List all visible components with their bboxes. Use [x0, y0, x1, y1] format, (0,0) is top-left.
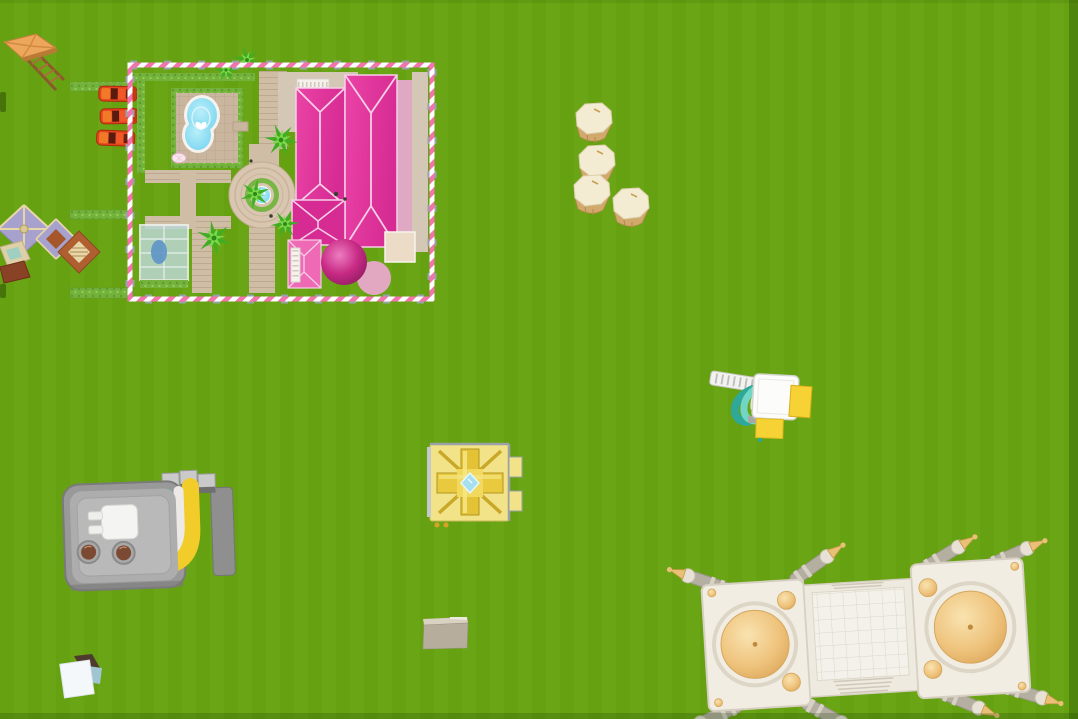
crate-face [60, 660, 94, 698]
golden-shrine[interactable] [427, 444, 522, 528]
plug [101, 504, 138, 539]
plug-prong [89, 526, 103, 534]
toaster-machine[interactable] [62, 469, 236, 591]
roof-left-gable [296, 88, 345, 205]
barrel[interactable] [574, 175, 610, 215]
concrete-slab[interactable] [423, 617, 468, 649]
dream-mansion-compound[interactable] [130, 45, 432, 299]
garden-path [249, 225, 275, 293]
hedge [140, 280, 188, 288]
grass-dark-patch [0, 92, 6, 112]
teal-peg [758, 438, 762, 442]
world-layer [0, 0, 1078, 719]
hedge [133, 73, 255, 81]
barrel-group[interactable] [574, 103, 649, 228]
watchtower[interactable] [4, 34, 64, 90]
white-crate[interactable] [60, 654, 102, 698]
gold-peg [435, 523, 440, 528]
back-plate [210, 487, 235, 576]
side-tab [509, 491, 522, 511]
east-roof-slope [397, 80, 412, 247]
grass-dark-patch [0, 284, 6, 298]
knob[interactable] [77, 541, 100, 564]
pool-area[interactable] [171, 88, 248, 168]
plug-prong [88, 512, 102, 520]
courtyard-tiles [812, 587, 909, 680]
east-terrace [412, 72, 428, 252]
palace[interactable] [663, 525, 1067, 719]
side-tab [509, 457, 522, 477]
hedge-arm [70, 288, 133, 298]
pink-dome-sphere[interactable] [321, 239, 367, 285]
greenhouse[interactable] [140, 225, 188, 288]
roof-finial [20, 225, 28, 233]
barrel[interactable] [613, 188, 649, 228]
hedge [137, 79, 145, 173]
south-pavilion [385, 232, 415, 262]
diving-board [233, 122, 248, 131]
mansion[interactable] [278, 72, 428, 295]
gold-peg [444, 523, 449, 528]
roof-south-wing [292, 200, 345, 245]
hedge-arm [70, 210, 133, 219]
left-rail [427, 447, 431, 517]
barrel[interactable] [576, 103, 612, 143]
greenhouse-pond [151, 240, 167, 264]
yellow-panel [789, 385, 812, 417]
pavilion-step [0, 261, 30, 283]
yellow-pad [756, 419, 784, 439]
slide-playset[interactable] [709, 371, 812, 443]
garden-path [180, 170, 196, 229]
playhouse-slide [288, 240, 321, 288]
knob[interactable] [112, 542, 135, 565]
roof-main [345, 75, 397, 247]
slab-face [423, 623, 468, 649]
game-viewport[interactable] [0, 0, 1078, 719]
